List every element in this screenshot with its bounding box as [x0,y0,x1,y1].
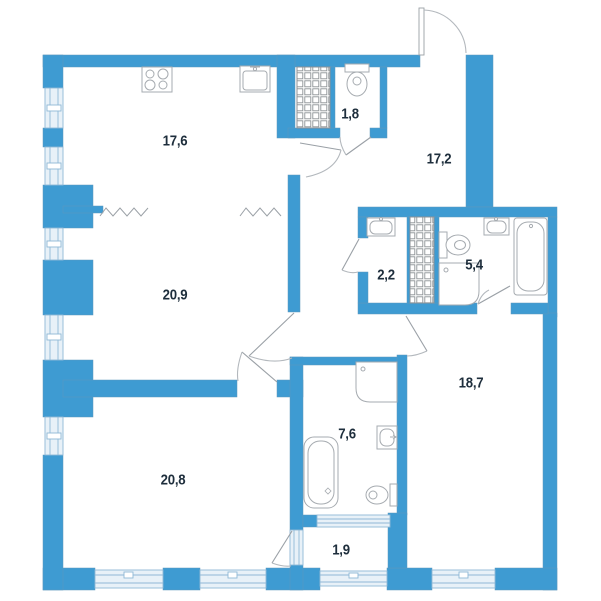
room-label-wc: 1,8 [341,106,359,123]
entrance-door-swing [419,8,466,55]
room-label-bathroom-1: 7,6 [338,426,356,443]
open-plan-zigzag [100,208,281,216]
kitchen-door-swing [300,143,341,177]
window [45,88,63,128]
bathtub-icon [304,437,338,508]
balcony-glazing [320,571,387,586]
room-label-kitchen: 17,6 [163,133,188,150]
floor-plan-drawing [0,0,601,601]
room-label-living: 20,9 [163,287,188,304]
toilet-icon [439,232,470,258]
window [45,147,63,185]
wc-door-swing [340,137,371,155]
living-room-door-swing [249,313,294,361]
kitchen-sink-icon [240,66,270,92]
window [95,570,163,588]
vent-shaft-icon [410,217,434,303]
toilet-icon [345,64,369,96]
bathroom-2-door-swing [478,286,510,304]
floor-plan: 17,6 1,8 17,2 20,9 2,2 5,4 18,7 7,6 20,8… [0,0,601,601]
toilet-icon [366,484,397,506]
stove-icon [142,67,172,92]
room-label-hallway: 17,2 [427,151,452,168]
laundry-door-swing [342,239,359,273]
window [317,515,390,527]
balcony-door-glazing [290,530,303,565]
room-label-balcony: 1,9 [332,542,350,559]
washbasin-icon [367,218,395,237]
room-label-bedroom-1: 20,8 [161,472,186,489]
washbasin-icon [377,426,397,449]
vent-shaft-icon [297,67,330,128]
window [45,417,63,455]
washbasin-icon [484,218,509,236]
window [45,228,63,260]
balcony-door-swing [272,531,292,566]
bathtub-icon [514,218,547,295]
bedroom-2-door-swing [406,316,427,356]
shower-tray-icon [356,362,397,402]
window [432,570,495,588]
room-label-laundry: 2,2 [377,267,395,284]
window [200,570,266,588]
room-label-bathroom-2: 5,4 [465,257,483,274]
bedroom-1-door-swing [238,352,278,382]
room-label-bedroom-2: 18,7 [459,375,484,392]
window [45,315,63,360]
